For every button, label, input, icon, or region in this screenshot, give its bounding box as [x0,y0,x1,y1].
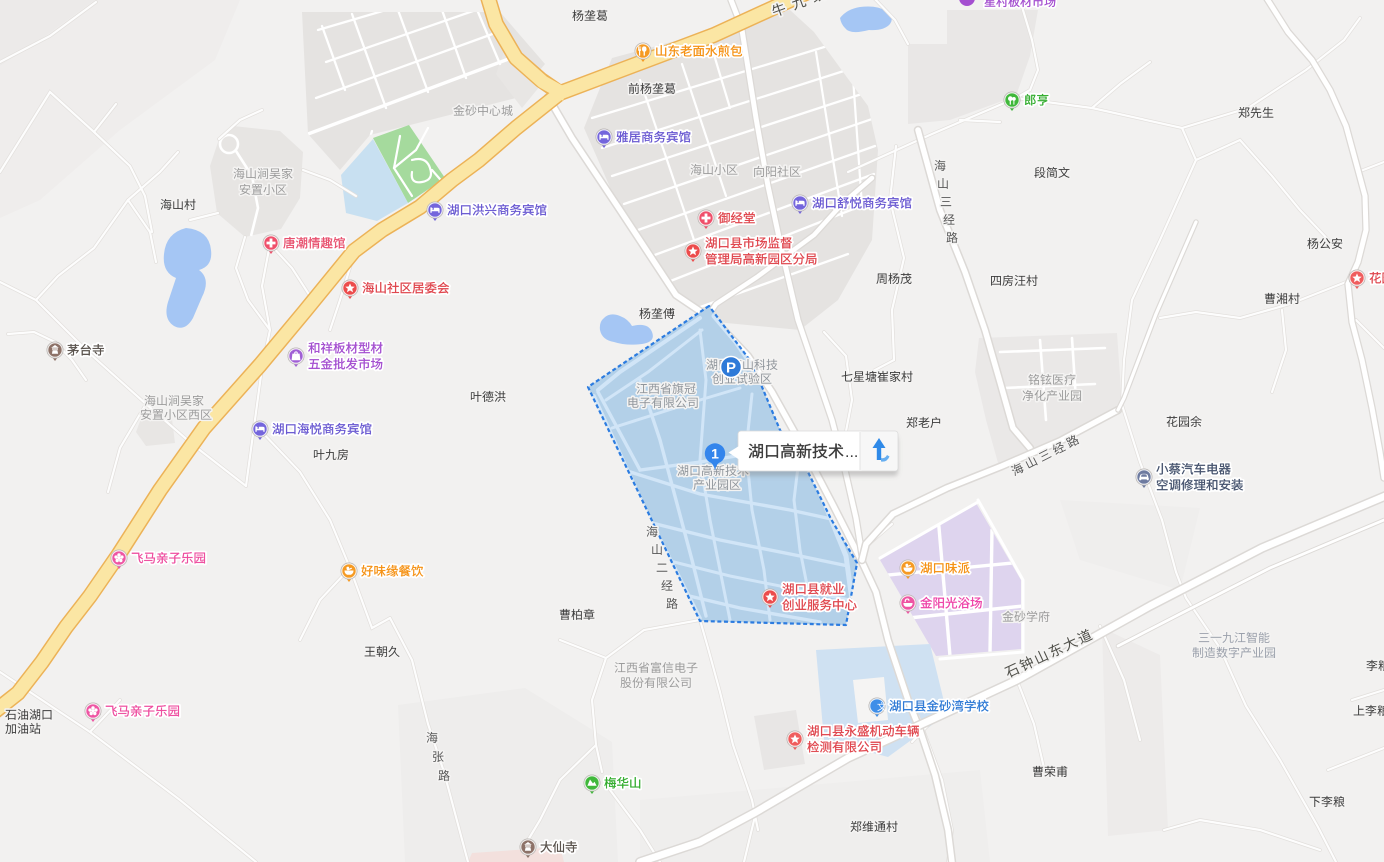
svg-text:1: 1 [711,446,719,462]
svg-text:...: ... [845,444,858,461]
svg-text:P: P [726,360,736,377]
